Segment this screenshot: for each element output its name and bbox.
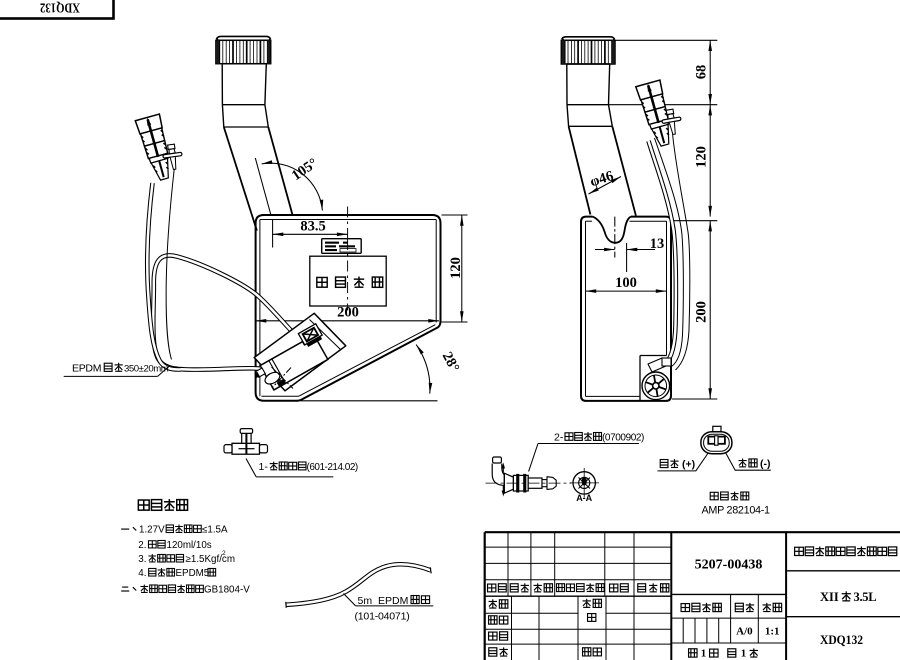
svg-text:XDQ132: XDQ132 (820, 632, 863, 647)
svg-text:A-A: A-A (576, 493, 592, 503)
svg-text:GB1804-V: GB1804-V (204, 584, 250, 595)
svg-text:1:1: 1:1 (765, 626, 780, 638)
svg-text:1-: 1- (259, 461, 269, 473)
svg-text:2-: 2- (554, 432, 564, 444)
svg-text:200: 200 (694, 301, 710, 323)
svg-text:3.: 3. (138, 554, 146, 565)
svg-text:AMP 282104-1: AMP 282104-1 (702, 505, 771, 517)
svg-text:≥1.5Kgf/cm: ≥1.5Kgf/cm (186, 554, 235, 565)
svg-text:1: 1 (701, 648, 707, 660)
svg-text:2: 2 (222, 550, 226, 557)
svg-text:XII: XII (820, 590, 839, 604)
svg-text:(+): (+) (682, 459, 695, 471)
svg-text:(101-04071): (101-04071) (355, 611, 410, 623)
svg-text:(-): (-) (760, 458, 771, 470)
svg-text:(0700902): (0700902) (602, 433, 644, 444)
svg-text:1.27V: 1.27V (139, 524, 165, 535)
svg-text:A/0: A/0 (736, 626, 753, 638)
svg-text:2.: 2. (138, 540, 146, 551)
svg-text:EPDM: EPDM (378, 595, 408, 607)
svg-text:120: 120 (448, 257, 464, 279)
svg-text:83.5: 83.5 (300, 219, 325, 235)
svg-text:≤1.5A: ≤1.5A (202, 524, 228, 535)
svg-text:EPDM5: EPDM5 (176, 568, 210, 579)
svg-text:100: 100 (615, 275, 637, 291)
svg-text:EPDM: EPDM (72, 363, 101, 375)
svg-text:68: 68 (694, 65, 710, 80)
svg-text:1: 1 (741, 648, 747, 660)
svg-text:13: 13 (650, 236, 665, 252)
svg-text:120: 120 (694, 146, 710, 168)
svg-text:5207-00438: 5207-00438 (695, 558, 763, 573)
svg-text:XDQ132: XDQ132 (40, 0, 80, 15)
svg-text:5m: 5m (358, 595, 373, 607)
svg-text:3.5L: 3.5L (854, 590, 877, 604)
svg-text:4.: 4. (138, 568, 146, 579)
svg-text:120ml/10s: 120ml/10s (167, 540, 212, 551)
svg-text:(601-214.02): (601-214.02) (307, 462, 358, 473)
